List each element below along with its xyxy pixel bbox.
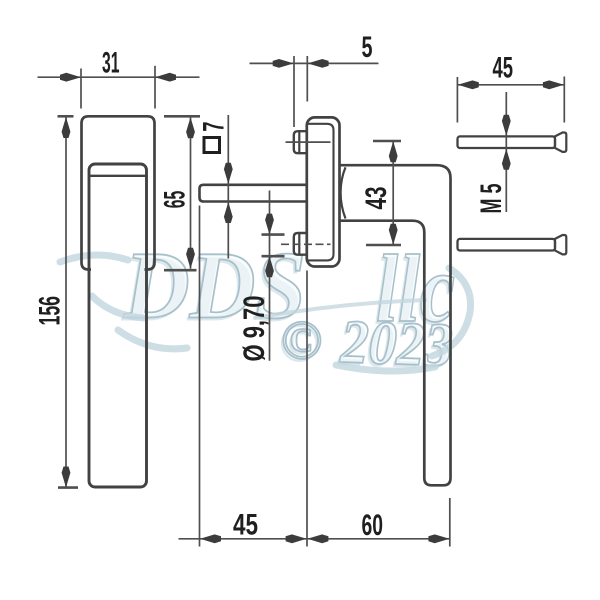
svg-text:45: 45 [233,509,258,542]
svg-text:65: 65 [159,191,192,209]
svg-text:156: 156 [34,296,67,326]
svg-text:43: 43 [360,187,393,210]
svg-text:5: 5 [362,31,373,64]
svg-text:©: © [281,310,322,371]
svg-text:7: 7 [198,122,231,132]
svg-text:60: 60 [362,509,384,542]
svg-text:31: 31 [102,47,120,80]
svg-text:M 5: M 5 [475,184,508,214]
svg-text:Ø 9,70: Ø 9,70 [238,296,271,362]
svg-text:45: 45 [493,52,514,85]
